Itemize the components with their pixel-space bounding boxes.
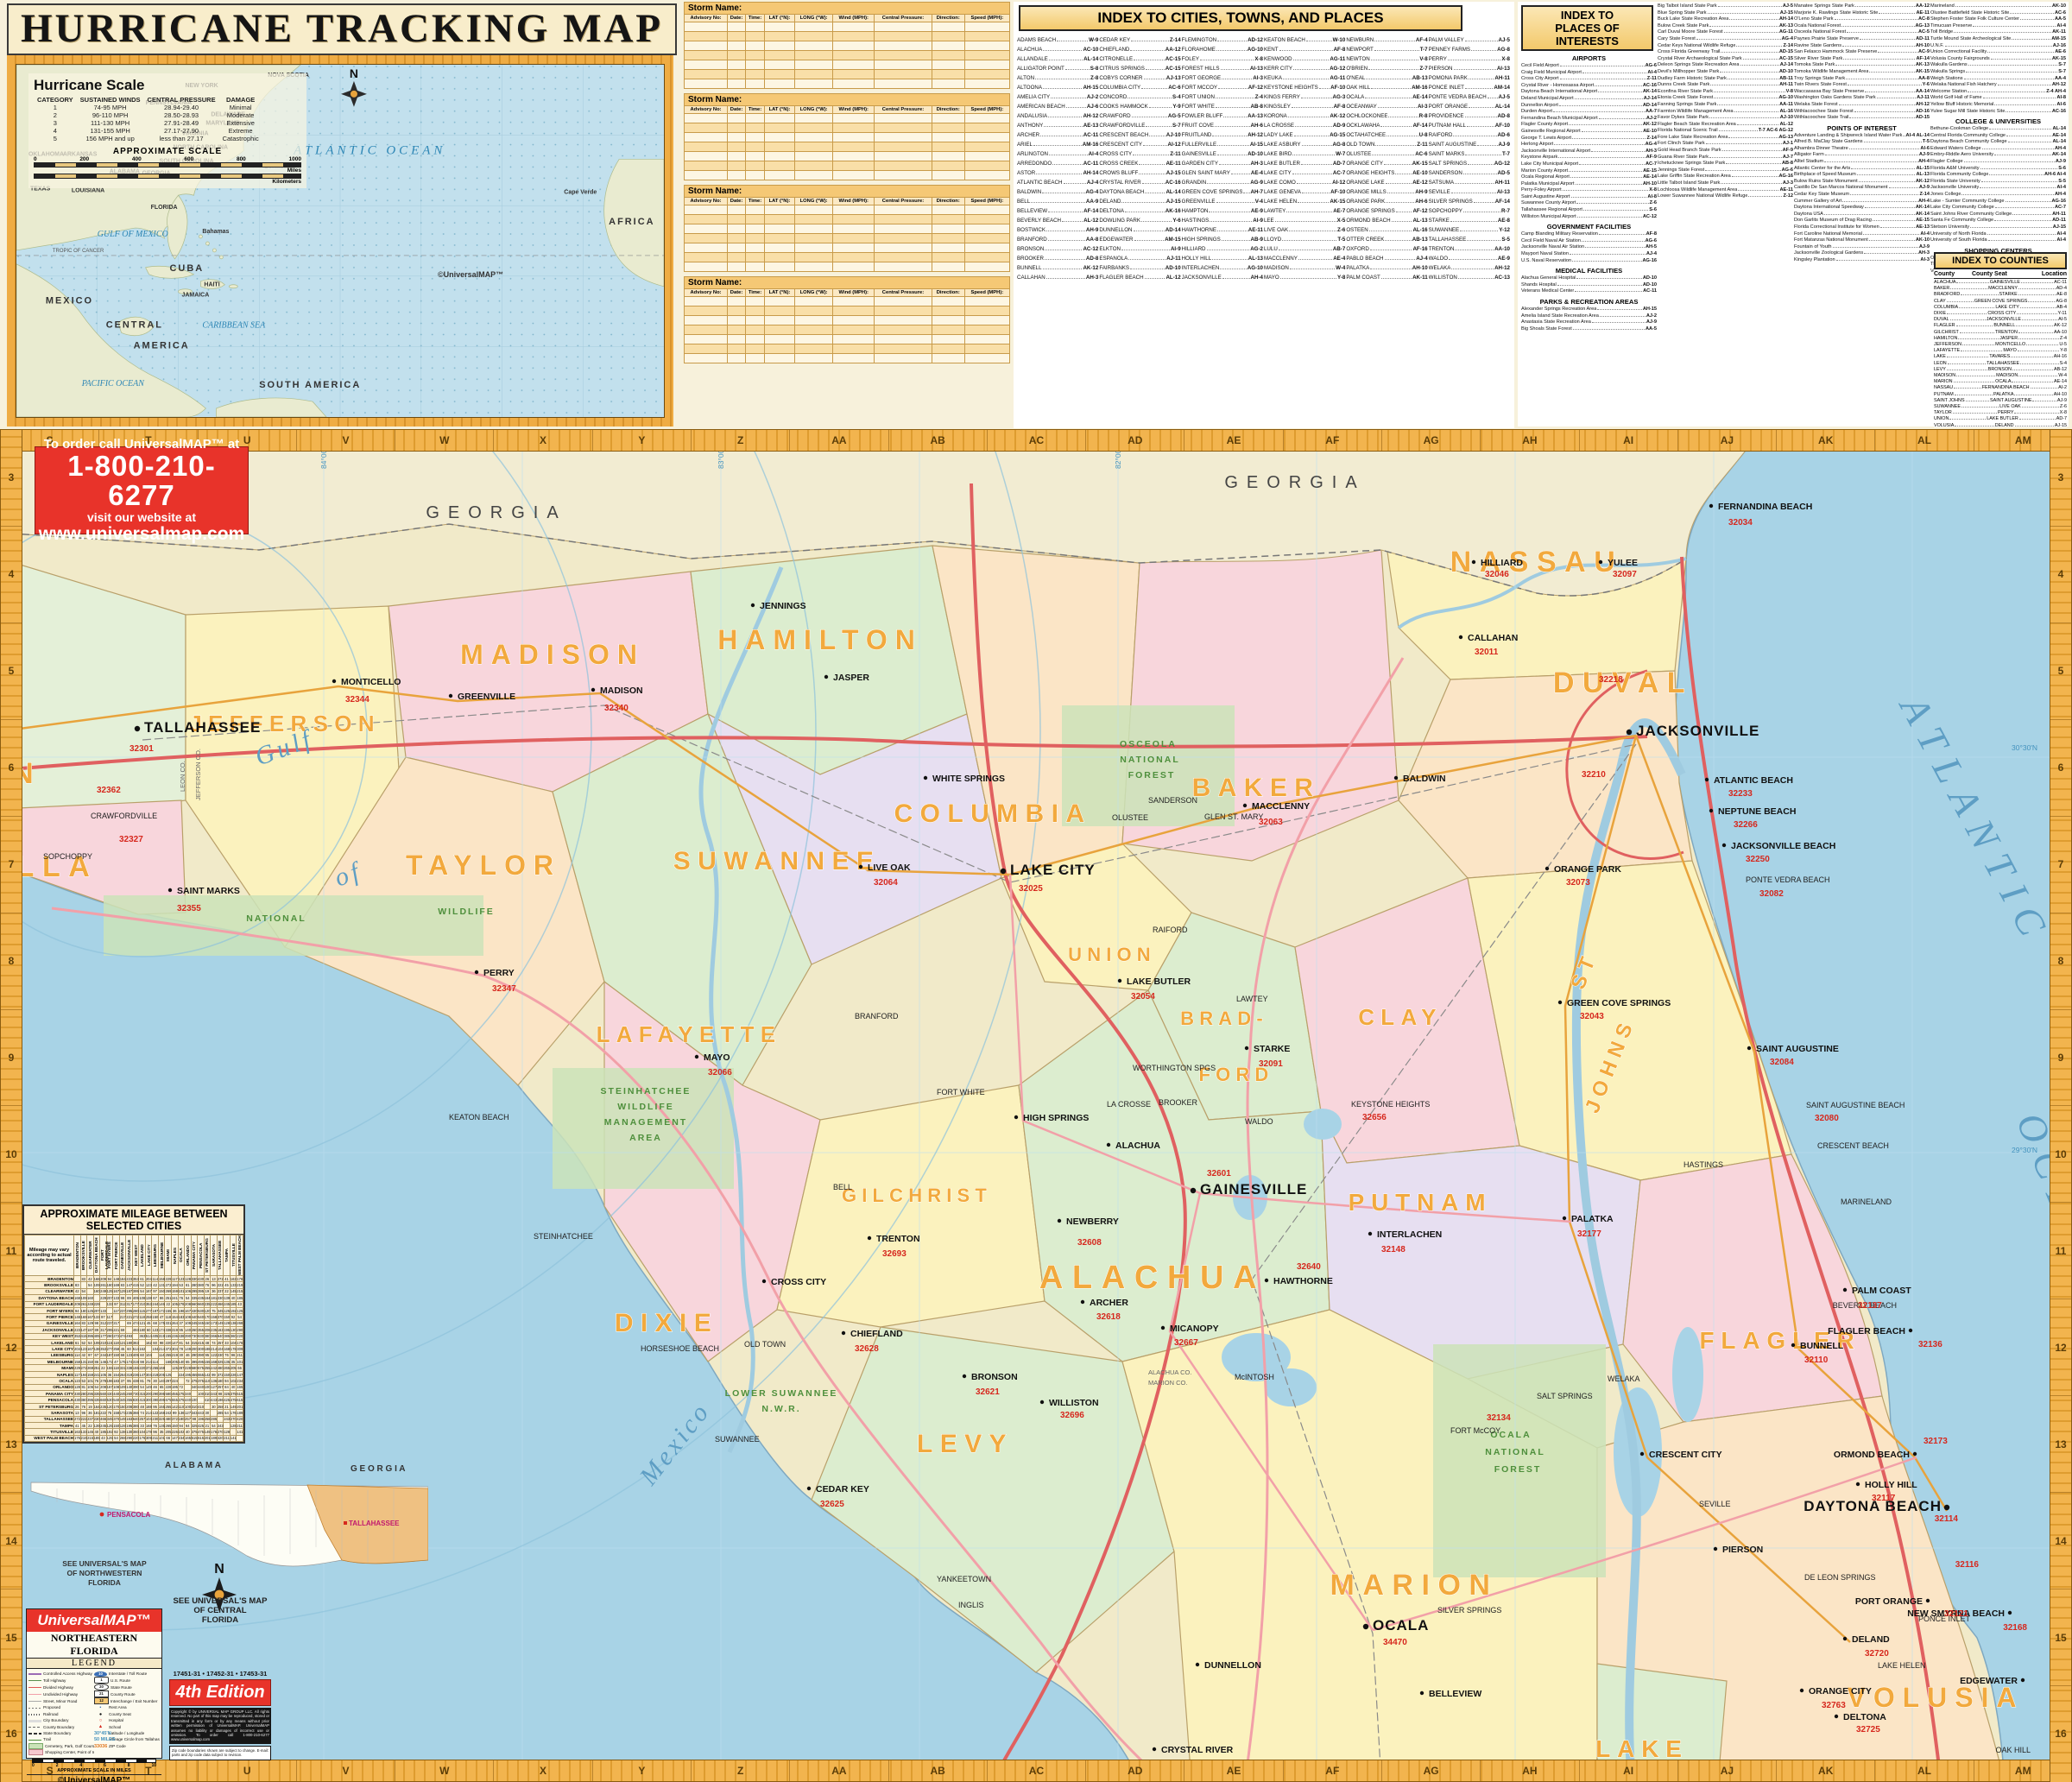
mileage-cell: 443 (198, 1410, 205, 1416)
storm-cell (932, 243, 964, 253)
mileage-row: OCALA12353101762781961833795438817830140… (25, 1378, 243, 1384)
scale-tick: 400 (132, 156, 142, 162)
mileage-cell: 176 (237, 1276, 243, 1282)
city-label: JENNINGS (760, 601, 806, 611)
leader-dots (2019, 419, 2056, 420)
leader-dots (1279, 50, 1333, 51)
see-central-note: SEE UNIVERSAL'S MAPOF CENTRALFLORIDA (169, 1596, 271, 1625)
city-dot (168, 888, 172, 892)
entry-gridref: AE-13 (1083, 121, 1099, 130)
index-entry: FLEMINGTONAD-12 (1182, 35, 1263, 45)
mileage-cell (87, 1288, 94, 1294)
mileage-cell: 92 (230, 1314, 237, 1320)
mileage-cell: 173 (211, 1320, 218, 1326)
leader-dots (1453, 136, 1496, 136)
poi-entry: Alligator FarmAJ-9 (1794, 152, 1930, 159)
mileage-cell: 277 (145, 1307, 152, 1313)
mileage-cell: 220 (132, 1435, 139, 1441)
entry-gridref: Z-14 (1919, 192, 1930, 199)
county-name: COLUMBIA (1934, 305, 1958, 311)
mileage-cell: 167 (185, 1307, 192, 1313)
area: NATIONAL (246, 913, 306, 924)
index-column: KEATON BEACHW-10KENTAF-8KENWOODAG-11KERR… (1264, 35, 1345, 282)
leader-dots (1128, 259, 1165, 260)
leader-dots (1450, 221, 1497, 222)
zip-code-label: 32168 (2003, 1623, 2027, 1633)
entry-gridref: AJ-9 (1919, 152, 1930, 159)
mileage-column-header: FORT PIERCE (113, 1235, 120, 1276)
mileage-cell: 145 (87, 1429, 94, 1435)
poi-entry: Birthplace of Speed MuseumAL-13 (1794, 172, 1930, 179)
entry-gridref: AK-12 (1083, 263, 1098, 273)
storm-cell (964, 22, 1009, 32)
entry-gridref: AE-13 (1916, 224, 1930, 231)
mileage-cell: 222 (211, 1301, 218, 1307)
mileage-cell: 47 (158, 1314, 165, 1320)
entry-gridref: R-8 (1419, 111, 1428, 121)
leader-dots (1854, 111, 1915, 112)
mileage-cell: 154 (171, 1314, 178, 1320)
poi-entry: Suwannee County AirportZ-6 (1521, 200, 1657, 207)
index-entry: FORT GEORGEAI-3 (1182, 73, 1263, 83)
city-label: PERRY (483, 968, 515, 978)
city-dot (1363, 1624, 1368, 1629)
storm-cell (794, 161, 832, 171)
mileage-cell: 205 (165, 1429, 172, 1435)
hurricane-scale-cell: Catastrophic (219, 135, 262, 142)
entry-name: PUTNAM HALL (1429, 121, 1466, 130)
county-name-label: UNION (1068, 944, 1156, 965)
county-name-label: BAKER (1192, 774, 1321, 802)
locator-georgia-label: G E O R G I A (351, 1464, 406, 1474)
index-entry: GAINESVILLEAD-10 (1182, 149, 1263, 159)
area: FOREST (1494, 1464, 1542, 1475)
entry-gridref: AG-4 (1086, 187, 1099, 197)
hurricane-scale-row: 296-110 MPH28.50-28.93Moderate (34, 111, 262, 119)
city-label: OCALA (1373, 1617, 1429, 1633)
mileage-cell: 272 (80, 1365, 87, 1371)
leader-dots (1046, 278, 1085, 279)
county-boundary-label: ALACHUA CO. (1148, 1368, 1191, 1376)
entry-name: CRESCENT CITY (1099, 140, 1142, 149)
mileage-cell: 40 (230, 1295, 237, 1301)
storm-cell (728, 253, 746, 262)
mileage-cell: 147 (171, 1435, 178, 1441)
leader-dots (2021, 282, 2053, 283)
storm-cell (833, 224, 875, 234)
city-dot (1599, 560, 1602, 564)
mileage-cell: 285 (217, 1410, 224, 1416)
mileage-column-header: ST PETERSBURG (204, 1235, 211, 1276)
scale-tick: 0 (32, 1763, 35, 1768)
mileage-cell: 195 (126, 1422, 133, 1428)
entry-gridref: T-7 AC-6 AG-12 (1759, 128, 1793, 135)
mileage-cell: 241 (93, 1371, 100, 1377)
leader-dots (1865, 207, 1915, 208)
leader-dots (1857, 174, 1916, 175)
storm-empty-row (685, 79, 1010, 89)
city-dot (449, 694, 452, 698)
entry-name: ORMOND BEACH (1346, 216, 1390, 225)
mileage-cell: 168 (158, 1365, 165, 1371)
entry-name: SUWANNEE (1429, 225, 1460, 235)
mileage-cell: 54 (87, 1339, 94, 1345)
legend-item: ○Hospital (94, 1717, 160, 1723)
mileage-cell: 255 (204, 1365, 211, 1371)
legend-symbol-icon (28, 1737, 41, 1742)
mileage-cell: 99 (211, 1371, 218, 1377)
entry-gridref: T-5 (1923, 139, 1930, 146)
mileage-cell: 37 (119, 1378, 126, 1384)
mileage-row-label: TITUSVILLE (25, 1429, 74, 1435)
leader-dots (1873, 220, 1915, 221)
index-entry: CRAWFORDVILLES-7 (1099, 121, 1180, 130)
index-entry: NEWPORTT-7 (1346, 45, 1427, 54)
entry-name: Central Florida Community College (1930, 133, 2006, 140)
zip-code-label: 32136 (1918, 1340, 1942, 1349)
leader-dots (1721, 183, 1782, 184)
storm-cell (794, 306, 832, 316)
zip-code-label: 32608 (1077, 1238, 1102, 1248)
entry-gridref: AD-8 (1086, 254, 1098, 263)
entry-name: Dudley Farm Historic State Park (1658, 76, 1727, 83)
mileage-cell: 165 (237, 1384, 243, 1390)
mileage-cell: 217 (119, 1314, 126, 1320)
hurricane-scale-header: SUSTAINED WINDS (77, 96, 144, 104)
leader-dots (1221, 69, 1249, 70)
legend-symbol-icon: 33036 (94, 1744, 107, 1749)
storm-cell (765, 335, 795, 344)
index-entry: OCTAHATCHEEU-8 (1346, 130, 1427, 140)
mileage-cell: 133 (113, 1295, 120, 1301)
index-entry: MAYOY-8 (1264, 273, 1345, 282)
entry-name: CRESCENT BEACH (1099, 130, 1148, 140)
storm-cell (685, 297, 728, 306)
entry-name: Alhambra Dinner Theatre (1794, 146, 1848, 153)
county-seat: TAVARES (1989, 354, 2010, 360)
storm-cell (728, 316, 746, 325)
mileage-cell: 300 (198, 1346, 205, 1352)
mileage-cell: 162 (145, 1339, 152, 1345)
mileage-cell: 495 (158, 1397, 165, 1403)
storm-cell (964, 297, 1009, 306)
county-seat: BUNNELL (1993, 323, 2015, 329)
order-line2: visit our website at (35, 510, 248, 524)
entry-gridref: AJ-4 (1646, 251, 1657, 258)
mileage-cell: 101 (87, 1378, 94, 1384)
mileage-cell: 580 (191, 1365, 198, 1371)
storm-column-header: Speed (MPH): (964, 198, 1009, 205)
entry-gridref: Y-6 (1172, 216, 1180, 225)
leader-dots (2022, 407, 2059, 408)
entry-gridref: AG-11 (1330, 73, 1345, 83)
index-column: PALM VALLEYAJ-5PENNEY FARMSAG-8PERRYX-8P… (1429, 35, 1510, 282)
entry-gridref: X-5 (1337, 216, 1346, 225)
index-entry: CROSS CITYZ-11 (1099, 149, 1180, 159)
poi-entry: Weigh StationsAA-4 (1930, 76, 2066, 83)
mileage-column-header: TITUSVILLE (230, 1235, 237, 1276)
poi-entry: Saint Johns River Community CollegeAH-11 (1930, 212, 2066, 218)
leader-dots (1973, 26, 2056, 27)
poi-section-header: GOVERNMENT FACILITIES (1521, 223, 1657, 231)
mileage-cell: 36 (171, 1307, 178, 1313)
index-entry: KERR CITYAG-12 (1264, 64, 1345, 73)
county-name: PUTNAM (1934, 392, 1954, 398)
entry-gridref: AB-13 (1412, 235, 1428, 244)
entry-gridref: AB-8 (1251, 102, 1263, 111)
city-dot (1161, 1326, 1165, 1330)
leader-dots (1392, 221, 1412, 222)
entry-name: FORT UNION (1182, 92, 1215, 102)
leader-dots (1463, 174, 1497, 174)
order-info-box: To order call UniversalMAP™ at 1-800-210… (35, 446, 249, 534)
entry-name: LADY LAKE (1264, 130, 1293, 140)
mileage-cell: 155 (132, 1365, 139, 1371)
mileage-cell: 97 (113, 1301, 120, 1307)
zip-code-label: 32117 (1872, 1494, 1896, 1503)
storm-cell (746, 32, 765, 41)
county-seat: JASPER (1999, 336, 2018, 342)
scale-tick: 600 (184, 156, 193, 162)
inset-frame: NOVA SCOTIANEW YORKPENNSYLVANIADELAWAREM… (16, 64, 665, 418)
entry-name: Turtle Mound State Archeological Site (1930, 36, 2011, 43)
storm-cell (794, 224, 832, 234)
mileage-cell: 345 (119, 1397, 126, 1403)
mileage-cell (217, 1416, 224, 1422)
mileage-cell: 125 (224, 1307, 231, 1313)
entry-gridref: AK-15 (2052, 56, 2066, 63)
entry-gridref: AK-14 (1916, 212, 1930, 218)
index-entry: OTTER CREEKAB-13 (1346, 235, 1427, 244)
mileage-row: BRADENTON8342168209941481642233536120411… (25, 1276, 243, 1282)
index-entry: CRESCENT CITYAI-12 (1099, 140, 1180, 149)
mileage-cell (145, 1346, 152, 1352)
mileage-cell: 325 (191, 1422, 198, 1428)
leader-dots (1282, 240, 1336, 241)
index-entry: KINGS FERRYAG-3 (1264, 92, 1345, 102)
entry-gridref: AM-16 (1083, 140, 1099, 149)
county-gridref: AD-7 (2056, 416, 2067, 422)
leader-dots (2006, 111, 2050, 112)
zip-code-label: 32011 (1475, 648, 1499, 657)
entry-name: Edward Waters College (1930, 146, 1981, 153)
mileage-cell: 493 (132, 1327, 139, 1333)
mileage-cell: 176 (211, 1429, 218, 1435)
entry-name: NEWBURN (1346, 35, 1374, 45)
grid-number: 10 (1, 1106, 22, 1203)
leader-dots (1048, 117, 1082, 117)
entry-name: HAWTHORNE (1182, 225, 1216, 235)
index-entry: CALLAHANAH-3 (1017, 273, 1098, 282)
poi-entry: Jacksonville Naval Air StationAH-5 (1521, 244, 1657, 251)
mileage-cell: 41 (224, 1276, 231, 1282)
mileage-cell: 72 (185, 1378, 192, 1384)
entry-gridref: AI-9 (1171, 244, 1181, 254)
entry-gridref: AJ-11 (1917, 95, 1930, 102)
leader-dots (1709, 157, 1782, 158)
entry-name: Alexander Springs Recreation Area (1521, 306, 1596, 313)
mileage-cell: 76 (93, 1378, 100, 1384)
mileage-row: FORT PIERCE14816916713397117217221272118… (25, 1314, 243, 1320)
legend-item-label: U.S. Route (111, 1678, 130, 1684)
entry-name: BROOKER (1017, 254, 1044, 263)
poi-entry: Embry-Riddle Aero UniversityAK-14 (1930, 152, 2066, 159)
poi-entry: Flagler County AirportAK-12 (1521, 122, 1657, 129)
index-entry: ARREDONDOAC-11 (1017, 159, 1098, 168)
poi-entry: University of North FloridaAI-4 (1930, 231, 2066, 238)
storm-cell (964, 325, 1009, 335)
leader-dots (1386, 202, 1414, 203)
storm-cell (728, 79, 746, 89)
poi-entry: Jacksonville International AirportAH-3 (1521, 148, 1657, 155)
leader-dots (1212, 259, 1248, 260)
mileage-cell: 335 (93, 1391, 100, 1397)
index-entry: CROSS CREEKAE-11 (1099, 159, 1180, 168)
legend-item: Street, Minor Road (28, 1697, 94, 1704)
legend-symbol-icon: ▪ (94, 1705, 107, 1710)
poi-entry: Santa Fe Community CollegeAD-11 (1930, 218, 2066, 224)
leader-dots (1295, 126, 1332, 127)
mileage-cell: 214 (145, 1410, 152, 1416)
storm-cell (964, 262, 1009, 272)
legend-item: Divided Highway (28, 1684, 94, 1690)
mileage-cell: 42 (74, 1288, 81, 1294)
storm-cell (728, 70, 746, 79)
mileage-cell: 60 (145, 1327, 152, 1333)
mileage-cell: 192 (230, 1307, 237, 1313)
entry-name: Amelia Island State Recreation Area (1521, 313, 1599, 320)
top-band: HURRICANE TRACKING MAP (0, 0, 2072, 429)
mileage-cell: 285 (211, 1416, 218, 1422)
city-label: DE LEON SPRINGS (1804, 1573, 1876, 1582)
poi-entry: Washington Oaks Gardens State ParkAJ-11 (1794, 95, 1930, 102)
entry-name: Bethune-Cookman College (1930, 126, 1988, 133)
city-label: FERNANDINA BEACH (1718, 502, 1812, 512)
mileage-cell: 201 (204, 1435, 211, 1441)
entry-name: Stephen Foster State Folk Culture Center (1930, 16, 2019, 23)
mileage-cell: 830 (198, 1333, 205, 1339)
index-entry: WELAKAAH-12 (1429, 263, 1510, 273)
index-entry: EDGEWATERAM-15 (1099, 235, 1180, 244)
index-entry: LAKE GENEVAAF-10 (1264, 187, 1345, 197)
mileage-column-label: TALLAHASSEE (218, 1235, 222, 1275)
poi-entry: Troy Springs State ParkAA-8 (1794, 76, 1930, 83)
mileage-cell: 221 (113, 1327, 120, 1333)
copyright-text-2: Zip code boundaries shown are subject to… (169, 1746, 271, 1760)
entry-name: Dunns Creek State Park (1658, 82, 1709, 89)
mileage-cell: 174 (126, 1359, 133, 1365)
storm-cell (794, 51, 832, 60)
mileage-cell: 76 (224, 1352, 231, 1358)
leader-dots (1121, 202, 1165, 203)
entry-gridref: AC-12 (1643, 214, 1657, 221)
leader-dots (1488, 98, 1498, 98)
mileage-column-label: MIAMI (166, 1235, 170, 1275)
storm-cell (875, 41, 932, 51)
poi-entry: Ichetucknee Springs State ParkAB-8 (1658, 161, 1793, 167)
index-entry: LEEX-5 (1264, 216, 1345, 225)
zip-code-label: 32080 (1815, 1114, 1839, 1123)
entry-gridref: AG-10 (1248, 263, 1263, 273)
storm-cell (833, 152, 875, 161)
storm-cell (833, 114, 875, 123)
leader-dots (1275, 221, 1336, 222)
storm-cell (794, 142, 832, 152)
poi-entry: Lake City Community CollegeAC-7 (1930, 205, 2066, 212)
storm-cell (833, 215, 875, 224)
mileage-cell: 249 (87, 1301, 94, 1307)
mileage-cell: 149 (204, 1429, 211, 1435)
index-entry: FORT WHITEAB-8 (1182, 102, 1263, 111)
legend-item: City Boundary (28, 1717, 94, 1723)
mileage-cell: 155 (165, 1307, 172, 1313)
mileage-row: NAPLES1171941592411053615426431923614730… (25, 1371, 243, 1377)
entry-gridref: AD-10 (1779, 69, 1793, 76)
storm-cell (932, 335, 964, 344)
city-dot (1196, 1663, 1199, 1666)
index-entry: HOLLY HILLAL-13 (1182, 254, 1263, 263)
leader-dots (1131, 41, 1169, 41)
mileage-cell: 243 (217, 1422, 224, 1428)
poi-entry: Flagler Beach State Recreation AreaAL-12 (1658, 122, 1793, 129)
mileage-cell: 155 (165, 1333, 172, 1339)
hurricane-scale-cell: 5 (34, 135, 77, 142)
mileage-row-label: FORT MYERS (25, 1307, 74, 1313)
index-entry: COOKS HAMMOCKY-9 (1099, 102, 1180, 111)
mileage-cell: 130 (126, 1429, 133, 1435)
entry-gridref: AI-12 (1168, 140, 1181, 149)
zip-code-label: 32696 (1060, 1411, 1084, 1420)
mileage-cell: 345 (106, 1416, 113, 1422)
mileage-cell: 372 (171, 1416, 178, 1422)
entry-gridref: AI-4 (1089, 149, 1099, 159)
mileage-cell (237, 1435, 243, 1441)
mileage-cell: 94 (106, 1276, 113, 1282)
entry-gridref: AK-14 (2052, 152, 2066, 159)
mileage-cell: 440 (113, 1391, 120, 1397)
entry-gridref: AI-4 (2056, 231, 2066, 238)
mileage-cell: 83 (74, 1282, 81, 1288)
mileage-cell: 270 (230, 1416, 237, 1422)
mileage-cell: 123 (80, 1346, 87, 1352)
leader-dots (1953, 413, 1997, 414)
poi-entry: Fort Caroline National MemorialAI-4 (1794, 231, 1930, 238)
entry-gridref: AJ-5 (1499, 35, 1510, 45)
storm-cell (685, 32, 728, 41)
poi-section-header: MEDICAL FACILITIES (1521, 267, 1657, 275)
leader-dots (1571, 197, 1647, 198)
mileage-cell: 141 (230, 1435, 237, 1441)
mileage-cell: 315 (191, 1339, 198, 1345)
leader-dots (1146, 126, 1172, 127)
mileage-cell: 176 (139, 1435, 146, 1441)
entry-gridref: AI-4 (1647, 70, 1657, 77)
storm-cell (964, 60, 1009, 70)
index-entry: DAYTONA BEACHAL-14 (1099, 187, 1180, 197)
storm-cell (833, 344, 875, 354)
mileage-cell: 319 (158, 1333, 165, 1339)
county-row: VOLUSIADELANDAJ-15 (1934, 423, 2067, 429)
grid-letter: AJ (1678, 1760, 1777, 1781)
entry-name: ORANGE PARK (1346, 197, 1385, 206)
county-gridref: AI-5 (2058, 317, 2067, 323)
storm-cell (833, 51, 875, 60)
storm-cell (794, 114, 832, 123)
leader-dots (1471, 50, 1496, 51)
mileage-cell: 395 (191, 1359, 198, 1365)
entry-gridref: AH-4 (1918, 199, 1930, 205)
mileage-cell: 275 (191, 1378, 198, 1384)
